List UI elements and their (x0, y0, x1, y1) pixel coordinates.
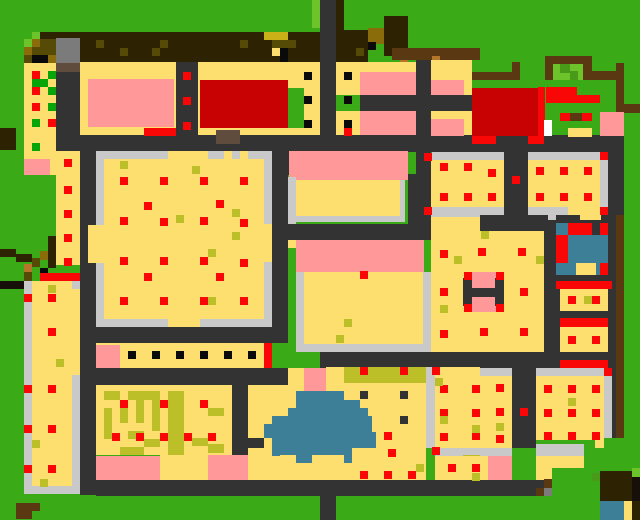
map-dot (568, 398, 576, 406)
terrain-feature (0, 128, 16, 150)
building-part (289, 151, 408, 180)
map-dot (120, 400, 128, 408)
building-part (296, 216, 405, 222)
map-dot (144, 273, 152, 281)
building-part (600, 160, 608, 207)
overlay-part (632, 501, 640, 520)
map-dot (128, 351, 136, 359)
map-dot (496, 384, 504, 392)
map-dot (240, 177, 248, 185)
overlay-part (632, 468, 640, 477)
map-dot (472, 409, 480, 417)
road-segment (96, 327, 272, 344)
building-part (480, 207, 504, 215)
map-dot (544, 409, 552, 417)
map-dot (344, 128, 352, 136)
building-part (536, 368, 608, 376)
map-dot (592, 336, 600, 344)
building-part (431, 160, 480, 207)
terrain-feature (570, 113, 582, 121)
map-dot (520, 288, 528, 296)
map-dot (568, 296, 576, 304)
map-dot (472, 385, 480, 393)
terrain-feature (264, 32, 288, 40)
road-segment (496, 136, 528, 144)
map-dot (160, 400, 168, 408)
building-part (360, 72, 416, 95)
building-part (272, 438, 376, 448)
map-dot (64, 234, 72, 242)
map-dot (64, 258, 72, 266)
map-dot (40, 479, 48, 487)
building-part (576, 263, 596, 275)
map-dot (496, 435, 504, 443)
map-dot (120, 177, 128, 185)
terrain-feature (240, 40, 248, 48)
building-part (72, 289, 80, 375)
map-dot (200, 257, 208, 265)
map-dot (200, 177, 208, 185)
map-dot (120, 257, 128, 265)
map-dot (24, 425, 32, 433)
terrain-feature (24, 55, 32, 63)
map-dot (344, 319, 352, 327)
map-dot (536, 256, 544, 264)
map-dot (400, 416, 408, 424)
terrain-feature (32, 47, 56, 55)
terrain-feature (512, 62, 520, 80)
map-dot (424, 153, 432, 161)
map-dot (32, 103, 40, 111)
map-dot (544, 385, 552, 393)
overlay-part (544, 488, 552, 496)
map-dot (32, 71, 40, 79)
map-dot (518, 248, 526, 256)
building-part (472, 288, 496, 297)
map-dot (400, 367, 408, 375)
map-dot (240, 219, 248, 227)
map-dot (568, 432, 576, 440)
map-dot (208, 297, 216, 305)
building-part (548, 215, 556, 220)
terrain-feature (560, 64, 570, 73)
road-segment (80, 151, 96, 495)
building-part (435, 448, 480, 456)
building-part (528, 152, 600, 160)
map-dot (568, 409, 576, 417)
building-part (264, 343, 272, 368)
building-part (604, 376, 612, 438)
map-dot (24, 294, 32, 302)
building-part (360, 111, 416, 135)
building-part (568, 223, 592, 235)
building-part (472, 136, 496, 144)
overlay-part (632, 477, 640, 501)
map-dot (120, 217, 128, 225)
terrain-feature (560, 113, 570, 121)
map-dot (496, 408, 504, 416)
terrain-feature (24, 47, 32, 55)
map-dot (183, 72, 191, 80)
building-part (288, 408, 368, 416)
map-dot (448, 464, 456, 472)
building-part (240, 151, 248, 159)
map-dot (408, 471, 416, 479)
building-part (296, 344, 431, 352)
terrain-feature (356, 48, 364, 56)
building-part (96, 456, 160, 480)
map-dot (480, 328, 488, 336)
building-part (560, 327, 608, 352)
map-dot (454, 256, 462, 264)
map-dot (440, 433, 448, 441)
building-part (423, 272, 431, 352)
map-dot (56, 359, 64, 367)
terrain-feature (32, 39, 40, 47)
building-part (88, 225, 104, 263)
building-part (600, 207, 608, 215)
map-dot (440, 288, 448, 296)
building-part (568, 128, 592, 137)
road-segment (272, 151, 289, 175)
building-part (104, 408, 112, 439)
map-dot (440, 250, 448, 258)
map-dot (435, 378, 443, 386)
building-part (592, 223, 600, 235)
building-part (432, 152, 504, 160)
map-dot (568, 385, 576, 393)
building-part (104, 391, 120, 400)
map-dot (496, 423, 504, 431)
building-part (556, 235, 568, 263)
building-part (431, 80, 464, 95)
building-part (344, 455, 352, 463)
building-part (304, 368, 326, 391)
map-dot (584, 167, 592, 175)
map-dot (48, 103, 56, 111)
map-dot (592, 296, 600, 304)
map-dot (481, 231, 489, 239)
building-part (253, 224, 272, 262)
building-part (538, 87, 545, 136)
terrain-feature (624, 104, 640, 113)
terrain-feature (592, 71, 616, 80)
map-dot (472, 473, 480, 481)
map-dot (208, 433, 216, 441)
building-part (288, 177, 296, 224)
town-map[interactable] (0, 0, 640, 520)
map-dot (424, 207, 432, 215)
terrain-feature (272, 48, 280, 56)
building-part (96, 345, 120, 368)
building-part (136, 400, 144, 423)
map-dot (48, 119, 56, 127)
building-part (296, 180, 400, 216)
building-part (495, 278, 504, 306)
building-part (144, 439, 160, 447)
building-part (431, 207, 480, 217)
map-dot (200, 351, 208, 359)
building-part (568, 207, 600, 215)
building-part (344, 367, 426, 383)
map-dot (216, 273, 224, 281)
map-dot (240, 297, 248, 305)
map-dot (64, 159, 72, 167)
map-dot (478, 248, 486, 256)
map-dot (160, 218, 168, 226)
terrain-feature (280, 48, 288, 62)
map-dot (432, 367, 440, 375)
map-dot (304, 120, 312, 128)
building-part (296, 391, 344, 400)
map-dot (604, 368, 612, 376)
map-dot (344, 72, 352, 80)
building-part (431, 119, 464, 136)
map-dot (136, 433, 144, 441)
building-part (296, 272, 304, 352)
map-dot (48, 465, 56, 473)
building-part (556, 223, 568, 235)
building-part (264, 424, 372, 432)
map-dot (183, 97, 191, 105)
terrain-feature (546, 87, 577, 95)
terrain-feature (48, 55, 56, 63)
overlay-part (16, 511, 32, 519)
building-part (463, 278, 472, 306)
map-dot (160, 257, 168, 265)
building-part (32, 281, 72, 486)
terrain-feature (24, 272, 32, 281)
map-dot (520, 408, 528, 416)
building-part (192, 438, 208, 446)
building-part (556, 263, 576, 275)
map-dot (388, 449, 396, 457)
building-part (580, 215, 601, 220)
road-segment (96, 480, 548, 496)
map-dot (568, 336, 576, 344)
map-dot (536, 193, 544, 201)
terrain-feature (616, 215, 624, 438)
building-part (120, 447, 144, 455)
building-part (200, 80, 288, 128)
terrain-feature (368, 42, 376, 50)
map-dot (464, 163, 472, 171)
building-part (600, 223, 608, 235)
building-part (488, 456, 512, 480)
map-dot (360, 271, 368, 279)
map-dot (200, 400, 208, 408)
map-dot (464, 193, 472, 201)
building-part (600, 112, 624, 136)
map-dot (536, 167, 544, 175)
map-dot (384, 432, 392, 440)
terrain-feature (56, 63, 80, 72)
terrain-feature (272, 40, 296, 48)
building-part (472, 88, 544, 136)
map-dot (416, 464, 424, 472)
building-part (296, 400, 360, 408)
terrain-feature (152, 48, 160, 56)
map-dot (32, 143, 40, 151)
road-segment (408, 174, 431, 232)
map-dot (584, 193, 592, 201)
building-part (544, 120, 552, 136)
map-dot (192, 166, 200, 174)
building-part (304, 272, 423, 344)
building-part (336, 448, 352, 455)
map-dot (440, 416, 448, 424)
map-dot (32, 87, 40, 95)
terrain-feature (32, 32, 40, 40)
map-dot (336, 335, 344, 343)
road-segment (320, 495, 336, 520)
overlay-part (544, 479, 552, 488)
map-dot (400, 391, 408, 399)
map-dot (176, 351, 184, 359)
map-dot (208, 249, 216, 257)
terrain-feature (40, 251, 48, 260)
road-segment (544, 311, 616, 318)
building-part (288, 368, 304, 385)
terrain-feature (24, 264, 32, 273)
map-dot (232, 209, 240, 217)
road-segment (320, 0, 336, 152)
map-dot (120, 297, 128, 305)
terrain-feature (48, 236, 56, 268)
terrain-feature (582, 113, 592, 121)
map-dot (48, 385, 56, 393)
terrain-feature (32, 55, 48, 63)
building-part (160, 455, 208, 480)
map-dot (360, 367, 368, 375)
road-segment (96, 368, 288, 385)
map-dot (24, 385, 32, 393)
overlay-part (232, 443, 248, 455)
map-dot (432, 447, 440, 455)
building-part (296, 240, 424, 272)
overlay-part (608, 438, 624, 448)
building-part (216, 130, 240, 144)
map-dot (160, 297, 168, 305)
map-dot (304, 72, 312, 80)
overlay-part (32, 79, 48, 87)
terrain-feature (24, 39, 32, 47)
building-part (272, 448, 280, 456)
terrain-feature (0, 281, 24, 289)
map-dot (160, 177, 168, 185)
map-dot (592, 432, 600, 440)
terrain-feature (32, 258, 40, 267)
building-part (208, 408, 224, 416)
map-dot (48, 285, 56, 293)
overlay-part (40, 273, 80, 281)
building-part (288, 88, 304, 128)
building-part (568, 235, 608, 263)
building-part (528, 207, 568, 215)
map-dot (176, 215, 184, 223)
road-segment (608, 152, 624, 222)
terrain-feature (546, 95, 600, 103)
terrain-feature (583, 65, 592, 80)
map-dot (64, 186, 72, 194)
road-segment (360, 95, 480, 111)
building-part (24, 159, 50, 175)
map-dot (440, 163, 448, 171)
building-part (272, 416, 372, 424)
building-part (120, 408, 128, 423)
map-dot (440, 305, 448, 313)
road-segment (272, 175, 288, 343)
map-dot (200, 297, 208, 305)
map-dot (184, 433, 192, 441)
terrain-feature (96, 40, 104, 48)
map-dot (120, 161, 128, 169)
map-dot (304, 96, 312, 104)
map-dot (560, 193, 568, 201)
map-dot (152, 351, 160, 359)
map-dot (488, 169, 496, 177)
map-dot (216, 200, 224, 208)
building-part (600, 152, 608, 160)
town-map-canvas[interactable] (0, 0, 640, 520)
map-dot (592, 385, 600, 393)
map-dot (232, 232, 240, 240)
building-part (528, 136, 544, 144)
map-dot (560, 167, 568, 175)
terrain-feature (616, 63, 624, 113)
building-part (426, 367, 435, 448)
map-dot (384, 471, 392, 479)
overlay-part (624, 501, 632, 520)
map-dot (472, 425, 480, 433)
building-part (556, 281, 612, 289)
terrain-feature (120, 48, 128, 56)
building-part (600, 263, 608, 275)
building-part (480, 456, 488, 480)
map-dot (464, 272, 472, 280)
map-dot (64, 210, 72, 218)
map-dot (48, 71, 56, 79)
map-dot (248, 351, 256, 359)
map-dot (496, 272, 504, 280)
map-dot (160, 433, 168, 441)
building-part (224, 151, 232, 159)
terrain-feature (336, 0, 344, 32)
building-part (400, 180, 405, 216)
building-part (168, 151, 208, 159)
map-dot (440, 409, 448, 417)
map-dot (472, 432, 480, 440)
building-part (152, 391, 160, 431)
map-dot (440, 193, 448, 201)
map-dot (584, 296, 592, 304)
overlay-part (536, 488, 544, 496)
overlay-part (600, 471, 632, 501)
terrain-feature (56, 38, 80, 63)
terrain-feature (0, 249, 16, 257)
terrain-feature (368, 28, 384, 44)
map-dot (32, 119, 40, 127)
map-dot (112, 433, 120, 441)
terrain-feature (40, 39, 56, 47)
road-segment (288, 224, 431, 240)
building-part (480, 368, 512, 376)
map-dot (48, 87, 56, 95)
map-dot (344, 96, 352, 104)
overlay-part (592, 473, 600, 481)
map-dot (440, 330, 448, 338)
map-dot (200, 217, 208, 225)
